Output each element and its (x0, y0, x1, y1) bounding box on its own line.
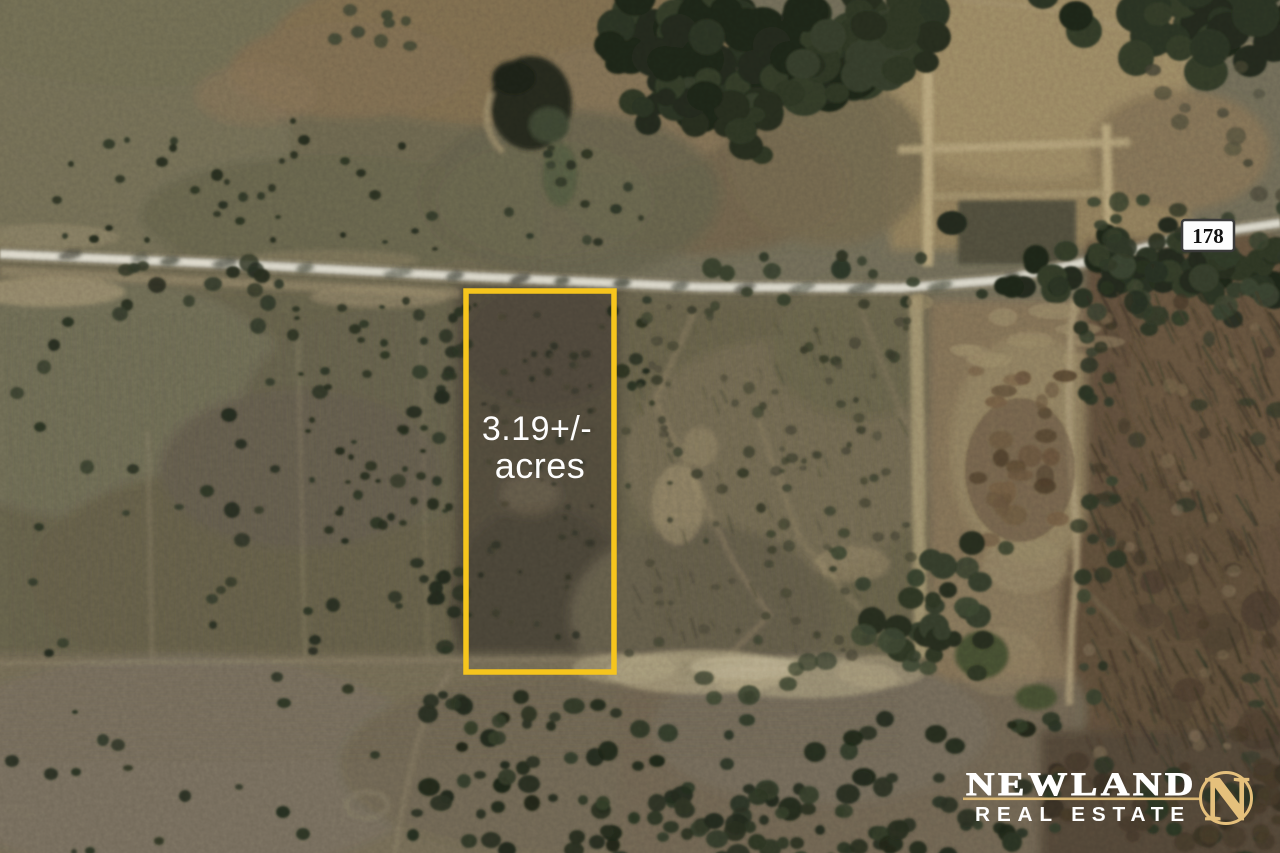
svg-text:acres: acres (495, 445, 586, 486)
svg-text:REAL ESTATE: REAL ESTATE (975, 804, 1191, 826)
svg-text:N: N (1204, 764, 1250, 834)
svg-text:3.19+/-: 3.19+/- (482, 410, 592, 448)
svg-text:178: 178 (1192, 224, 1224, 248)
